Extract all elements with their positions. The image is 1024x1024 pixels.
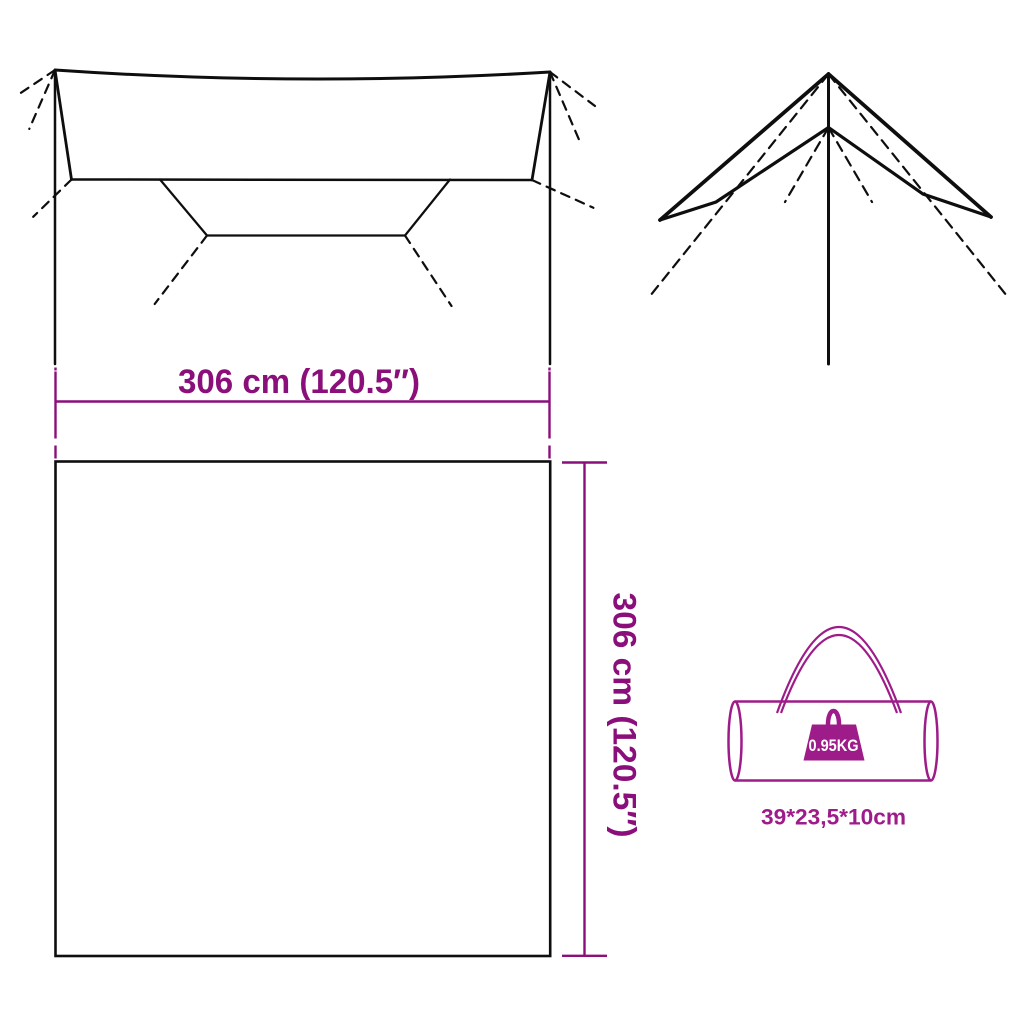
svg-text:306 cm (120.5″): 306 cm (120.5″) [178, 363, 420, 401]
svg-text:0.95KG: 0.95KG [809, 737, 859, 755]
svg-text:39*23,5*10cm: 39*23,5*10cm [761, 805, 906, 830]
svg-text:306 cm (120.5″): 306 cm (120.5″) [607, 593, 643, 838]
